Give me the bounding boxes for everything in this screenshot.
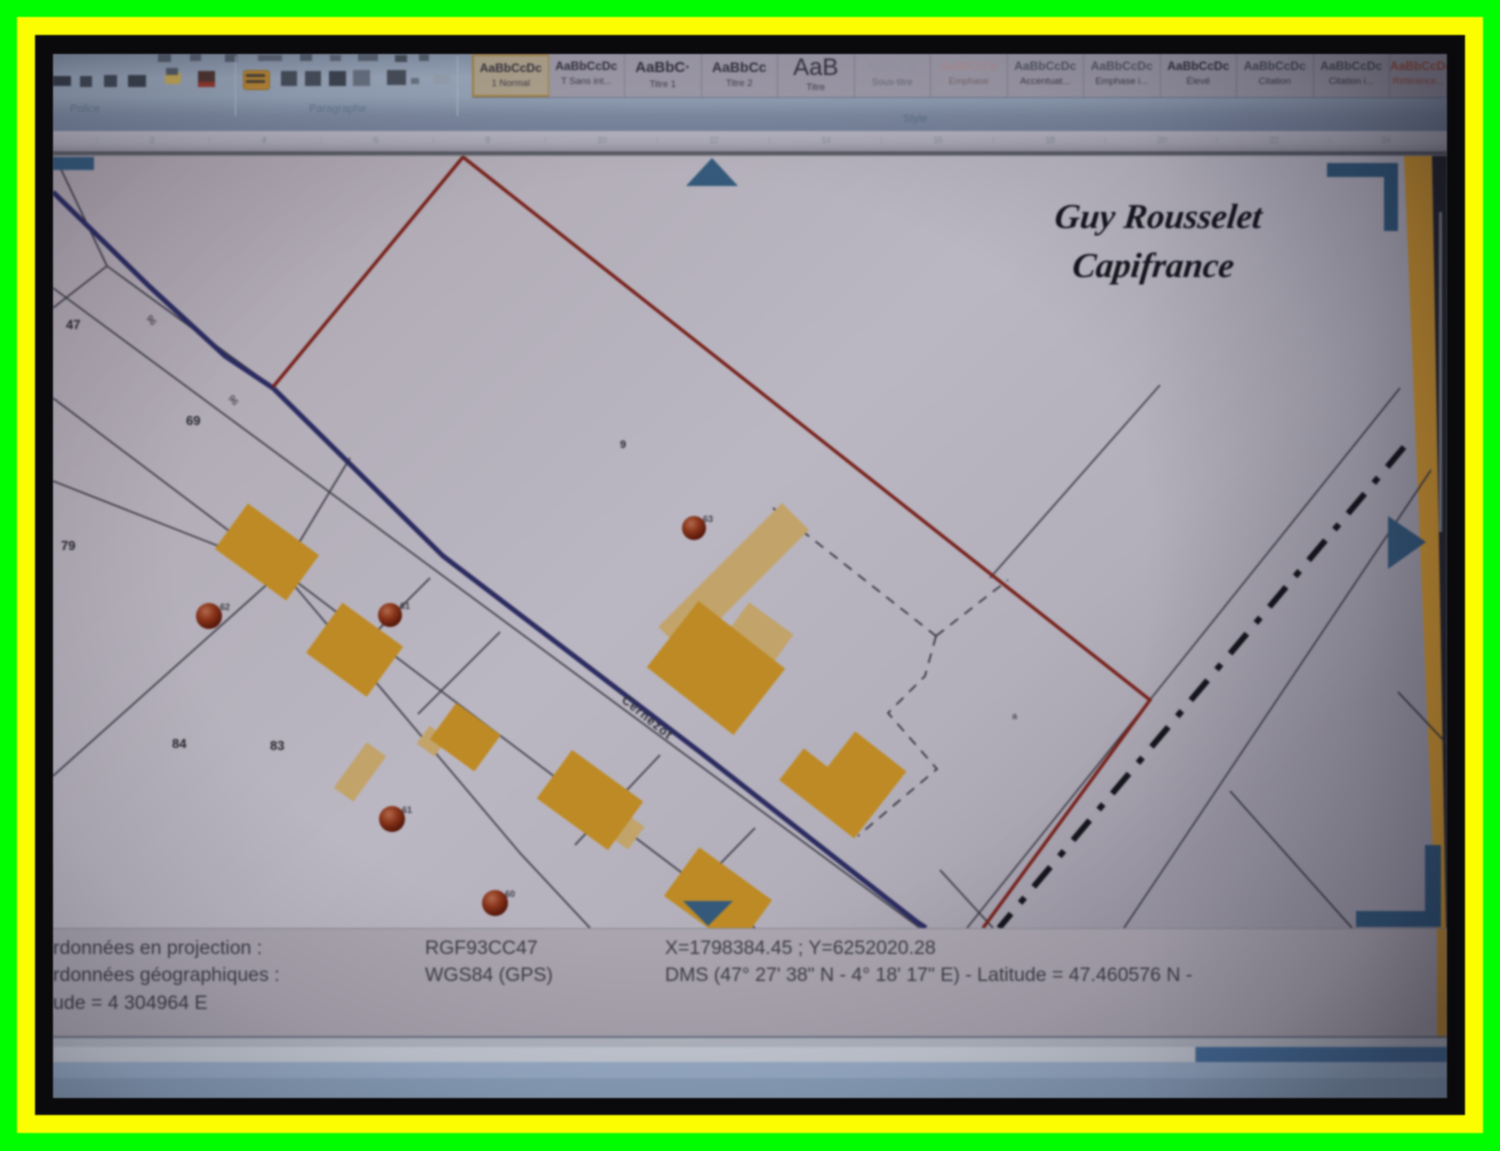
svg-text:9: 9 bbox=[620, 439, 626, 451]
svg-text:63: 63 bbox=[703, 514, 713, 524]
svg-text:84: 84 bbox=[172, 736, 187, 751]
svg-text:61: 61 bbox=[402, 805, 412, 815]
svg-text:a: a bbox=[1012, 711, 1017, 721]
svg-text:60: 60 bbox=[505, 889, 515, 899]
svg-text:61: 61 bbox=[400, 601, 410, 611]
svg-text:69: 69 bbox=[186, 413, 200, 428]
svg-text:79: 79 bbox=[61, 538, 75, 553]
svg-text:47: 47 bbox=[66, 317, 80, 332]
svg-text:83: 83 bbox=[270, 738, 284, 753]
svg-text:62: 62 bbox=[220, 602, 230, 612]
